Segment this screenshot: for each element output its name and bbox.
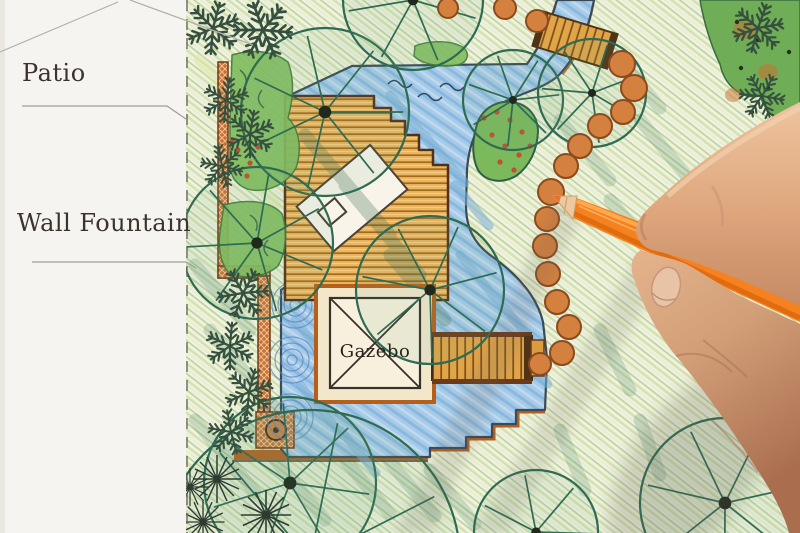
label-patio: Patio bbox=[22, 59, 86, 87]
stepping-stone bbox=[554, 154, 578, 178]
label-wall-fountain: Wall Fountain bbox=[17, 209, 191, 237]
stepping-stone bbox=[557, 315, 581, 339]
stepping-stone bbox=[611, 100, 635, 124]
label-gazebo: Gazebo bbox=[333, 341, 417, 362]
stepping-stone bbox=[438, 0, 458, 18]
stepping-stone bbox=[545, 290, 569, 314]
stepping-stone bbox=[609, 51, 635, 77]
stepping-stone bbox=[526, 10, 548, 32]
stepping-stone bbox=[588, 114, 612, 138]
stepping-stone bbox=[550, 341, 574, 365]
landscape-plan-photo: Patio Wall Fountain Gazebo bbox=[0, 0, 800, 533]
stepping-stone bbox=[494, 0, 516, 19]
stepping-stone bbox=[621, 75, 647, 101]
landscape-plan-drawing bbox=[0, 0, 800, 533]
stepping-stone bbox=[529, 353, 551, 375]
grass-tuft bbox=[193, 455, 241, 503]
tree-symbol bbox=[181, 167, 333, 319]
